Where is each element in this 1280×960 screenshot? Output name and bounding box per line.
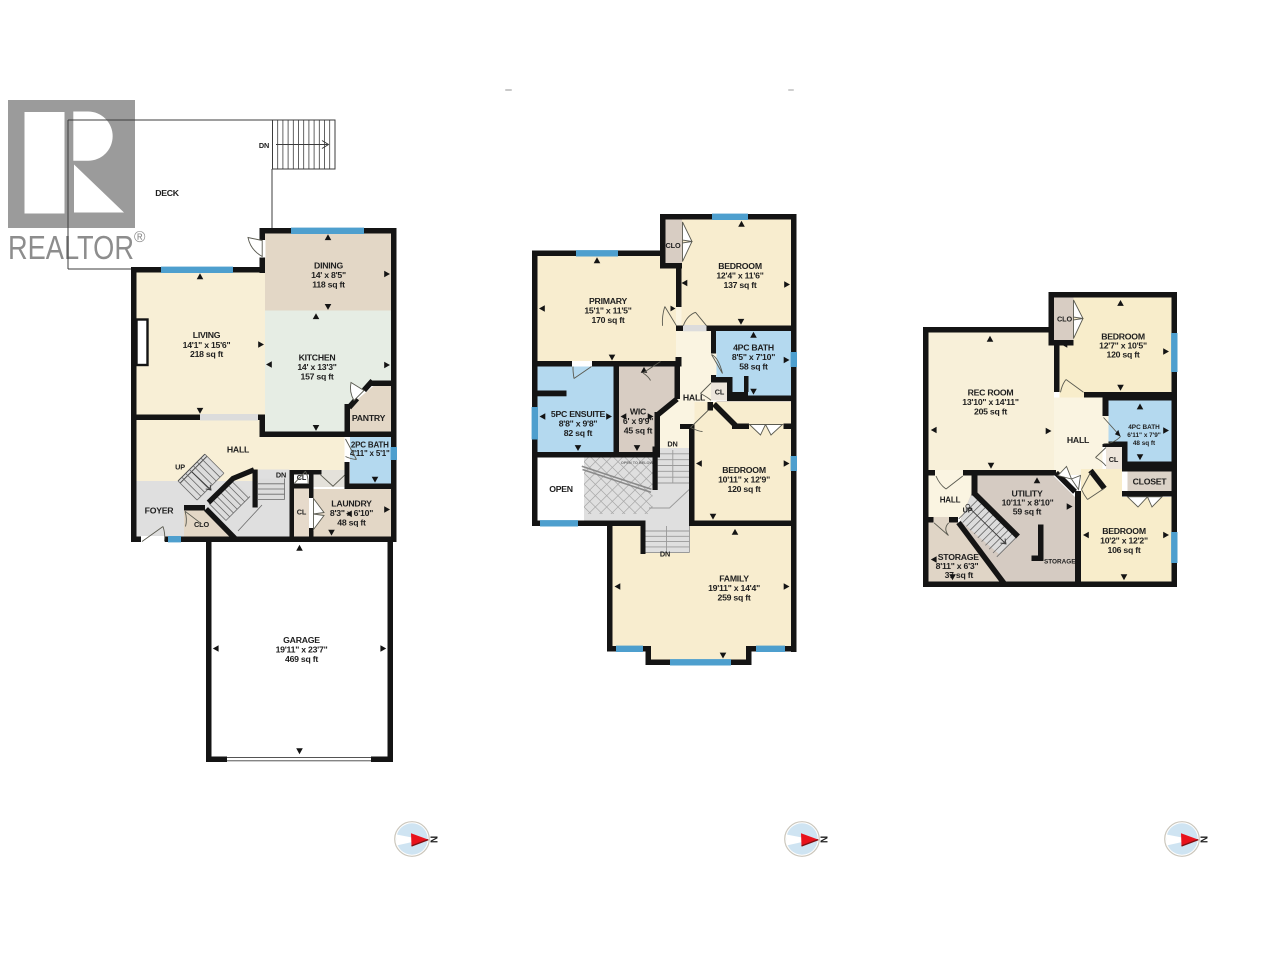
svg-text:CLO: CLO [666,241,681,250]
svg-text:48 sq ft: 48 sq ft [337,518,366,528]
svg-text:8'5" x 7'10": 8'5" x 7'10" [732,352,775,362]
svg-text:5PC ENSUITE: 5PC ENSUITE [551,409,606,419]
svg-text:157 sq ft: 157 sq ft [301,372,334,382]
svg-text:10'11" x 12'9": 10'11" x 12'9" [718,475,770,485]
svg-text:REC ROOM: REC ROOM [968,388,1014,398]
svg-text:45 sq ft: 45 sq ft [624,426,653,436]
svg-text:DINING: DINING [314,260,343,270]
svg-text:205 sq ft: 205 sq ft [974,406,1007,416]
svg-text:CLO: CLO [194,520,209,529]
svg-text:LIVING: LIVING [193,330,221,340]
svg-text:120 sq ft: 120 sq ft [1107,350,1140,360]
svg-text:FOYER: FOYER [145,506,175,516]
svg-text:CL: CL [715,388,725,397]
svg-text:6'11" x 7'9": 6'11" x 7'9" [1127,432,1161,439]
svg-text:STORAGE: STORAGE [1044,559,1076,566]
svg-text:37 sq ft: 37 sq ft [945,570,974,580]
svg-text:PRIMARY: PRIMARY [589,296,627,306]
svg-text:14' x 8'5": 14' x 8'5" [311,270,346,280]
svg-text:PANTRY: PANTRY [352,413,386,423]
svg-text:BEDROOM: BEDROOM [718,261,762,271]
svg-text:120 sq ft: 120 sq ft [728,484,761,494]
svg-text:469 sq ft: 469 sq ft [285,654,318,664]
svg-text:DN: DN [660,550,670,559]
svg-text:HALL: HALL [940,496,961,505]
svg-text:58 sq ft: 58 sq ft [739,362,768,372]
svg-text:DN: DN [667,440,677,449]
svg-text:FAMILY: FAMILY [719,574,749,584]
svg-text:BEDROOM: BEDROOM [1102,526,1146,536]
svg-text:CLO: CLO [1057,315,1072,324]
svg-text:12'4" x 11'6": 12'4" x 11'6" [716,271,763,281]
svg-text:UP: UP [175,463,185,472]
svg-text:OPEN: OPEN [549,484,573,494]
svg-text:WIC: WIC [630,407,647,417]
svg-text:82 sq ft: 82 sq ft [564,428,593,438]
svg-text:DN: DN [276,471,286,480]
svg-text:137 sq ft: 137 sq ft [724,280,757,290]
svg-text:LAUNDRY: LAUNDRY [331,499,372,509]
svg-text:GARAGE: GARAGE [283,635,320,645]
svg-text:59 sq ft: 59 sq ft [1013,506,1042,516]
svg-text:BEDROOM: BEDROOM [722,465,766,475]
svg-text:14' x 13'3": 14' x 13'3" [297,362,336,372]
svg-text:4PC BATH: 4PC BATH [1128,424,1160,431]
svg-text:CLOSET: CLOSET [1133,477,1168,487]
svg-text:CL: CL [297,508,307,517]
svg-text:N: N [427,836,438,843]
svg-text:4'11" x 5'1": 4'11" x 5'1" [350,449,390,458]
svg-text:218 sq ft: 218 sq ft [190,349,223,359]
svg-text:REALTOR: REALTOR [8,229,134,266]
svg-text:4PC BATH: 4PC BATH [733,343,774,353]
svg-text:®: ® [134,229,146,246]
svg-text:UP: UP [963,506,973,515]
svg-text:170 sq ft: 170 sq ft [592,315,625,325]
svg-text:106 sq ft: 106 sq ft [1108,545,1141,555]
svg-text:8'8" x 9'8": 8'8" x 9'8" [559,419,598,429]
svg-text:DECK: DECK [155,188,180,198]
svg-text:48 sq ft: 48 sq ft [1133,440,1156,447]
svg-text:HALL: HALL [227,445,250,455]
svg-text:259 sq ft: 259 sq ft [718,593,751,603]
svg-text:N: N [1197,836,1208,843]
svg-text:DN: DN [259,141,269,150]
svg-text:CL: CL [1109,455,1119,464]
svg-text:HALL: HALL [1067,435,1090,445]
svg-text:KITCHEN: KITCHEN [299,352,336,362]
svg-text:OPEN TO BELOW: OPEN TO BELOW [621,461,654,465]
svg-text:118 sq ft: 118 sq ft [312,280,345,290]
svg-text:N: N [817,836,828,843]
